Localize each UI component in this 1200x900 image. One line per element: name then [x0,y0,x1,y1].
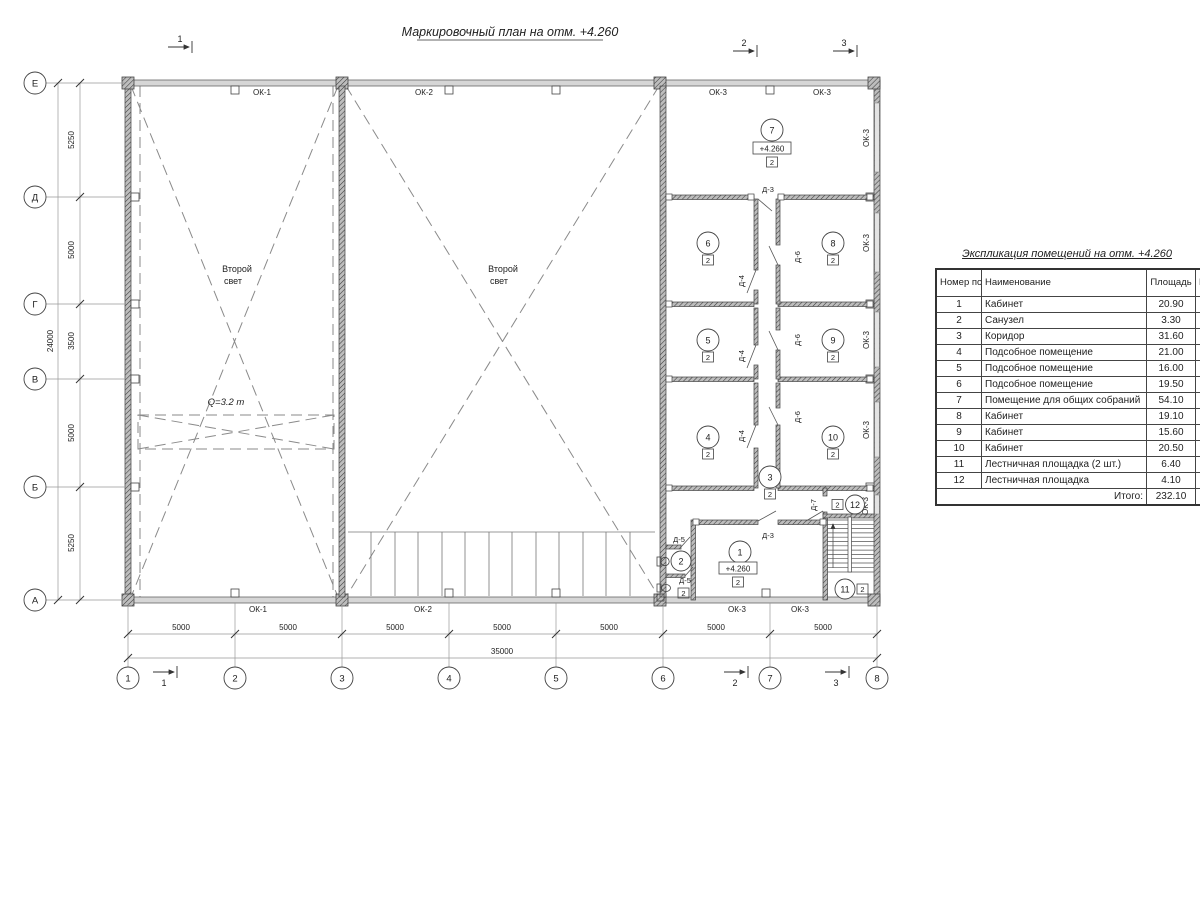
room-num: 1 [936,297,982,313]
room-num: 11 [936,457,982,473]
axis-bubble: 4 [446,674,451,685]
left-dimensions: 5250 5000 3500 5000 5250 24000 [46,131,76,552]
room-cat [1196,329,1200,345]
room-num: 5 [936,361,982,377]
door-label-d4: Д-4 [737,430,746,442]
room-name: Помещение для общих собраний [982,393,1147,409]
outer-walls [122,77,880,606]
table-row: 4Подсобное помещение21.00 [936,345,1200,361]
room-area: 54.10 [1147,393,1196,409]
axis-bubble: Б [32,483,38,494]
axes-bottom: 1 2 3 4 5 6 7 8 5000 5000 5000 5000 5000… [117,603,888,689]
section-mark-label: 3 [841,38,846,48]
room-number: 1 [737,548,742,558]
door-label-d3: Д-3 [762,185,774,194]
dim-total-label: 35000 [491,647,514,656]
dim-label: 5000 [172,623,190,632]
room-cat [1196,313,1200,329]
second-light-text: свет [224,276,242,286]
category-badge: 2 [770,158,774,167]
room-area: 16.00 [1147,361,1196,377]
room-cat [1196,409,1200,425]
dim-label: 5000 [279,623,297,632]
section-mark-label: 2 [732,678,737,688]
dim-label: 3500 [67,332,76,350]
room-cat [1196,441,1200,457]
room-num: 3 [936,329,982,345]
room-number: 3 [767,473,772,483]
dim-total-label: 24000 [46,329,55,352]
room-name: Коридор [982,329,1147,345]
col-header-number: Номер помещ. [936,269,982,297]
room-name: Лестничная площадка (2 шт.) [982,457,1147,473]
sheet-title: Маркировочный план на отм. +4.260 [402,25,619,40]
plan-title: Маркировочный план на отм. +4.260 [402,25,619,39]
section-mark-label: 2 [741,38,746,48]
dim-label: 5000 [493,623,511,632]
room-number: 10 [828,433,838,443]
axis-bubble: А [32,596,39,607]
table-row: 12Лестничная площадка4.10 [936,473,1200,489]
explication-title: Экспликация помещений на отм. +4.260 [935,248,1199,260]
room-num: 9 [936,425,982,441]
table-row: 10Кабинет20.50 [936,441,1200,457]
room-area: 6.40 [1147,457,1196,473]
dim-label: 5000 [600,623,618,632]
room-num: 10 [936,441,982,457]
door-label-d6: Д-6 [793,334,802,346]
door-label-d4: Д-4 [737,350,746,362]
axis-bubble: 8 [874,674,879,685]
table-row: 6Подсобное помещение19.50 [936,377,1200,393]
window-label-ok1: ОК-1 [249,605,268,614]
window-label-ok3: ОК-3 [862,330,871,349]
section-mark-label: 1 [161,678,166,688]
category-badge: 2 [706,353,710,362]
section-mark-label: 1 [177,34,182,44]
room-number: 5 [705,336,710,346]
total-area: 232.10 [1147,489,1196,506]
level-mark: +4.260 [726,565,751,574]
window-label-ok3: ОК-3 [709,88,728,97]
room-name: Подсобное помещение [982,345,1147,361]
table-row: 2Санузел3.30 [936,313,1200,329]
room-num: 6 [936,377,982,393]
room-num: 2 [936,313,982,329]
room-cat [1196,473,1200,489]
door-label-d5: Д-5 [679,576,691,585]
category-badge: 2 [835,501,839,510]
category-badge: 2 [831,256,835,265]
window-label-ok3: ОК-3 [862,420,871,439]
room-area: 3.30 [1147,313,1196,329]
room-area: 21.00 [1147,345,1196,361]
room-name: Санузел [982,313,1147,329]
room-name: Лестничная площадка [982,473,1147,489]
door-label-d3: Д-3 [762,531,774,540]
col-header-cat: Кат. пом. [1196,269,1200,297]
level-mark: +4.260 [760,145,785,154]
category-badge: 2 [736,578,740,587]
room-num: 4 [936,345,982,361]
table-row: 11Лестничная площадка (2 шт.)6.40 [936,457,1200,473]
door-label-d6: Д-6 [793,251,802,263]
total-label: Итого: [936,489,1147,506]
room-area: 20.50 [1147,441,1196,457]
room-name: Кабинет [982,441,1147,457]
category-badge: 2 [706,450,710,459]
room-number: 12 [850,500,860,510]
hall-annotations: Второй свет Второй свет Q=3.2 т [208,264,518,408]
axis-bubble: 5 [553,674,558,685]
axis-bubble: 6 [660,674,665,685]
axis-bubble: 3 [339,674,344,685]
platform [348,532,655,596]
col-header-name: Наименование [982,269,1147,297]
table-total-row: Итого: 232.10 [936,489,1200,506]
room-number: 4 [705,433,710,443]
category-badge: 2 [831,353,835,362]
room-name: Подсобное помещение [982,377,1147,393]
category-badge: 2 [768,490,772,499]
window-label-ok3: ОК-3 [813,88,832,97]
total-cat [1196,489,1200,506]
room-num: 12 [936,473,982,489]
second-light-text: Второй [488,264,518,274]
room-name: Кабинет [982,409,1147,425]
room-cat [1196,377,1200,393]
room-cat [1196,345,1200,361]
second-light-diagonals [131,86,659,597]
door-label-d5: Д-5 [673,535,685,544]
room-cat [1196,457,1200,473]
window-label-ok3: ОК-3 [728,605,747,614]
stairs [827,517,874,572]
door-label-d4: Д-4 [737,275,746,287]
window-label-ok3: ОК-3 [862,128,871,147]
room-area: 15.60 [1147,425,1196,441]
crane-capacity-label: Q=3.2 т [208,397,245,408]
room-number: 11 [840,585,849,595]
room-name: Подсобное помещение [982,361,1147,377]
dim-label: 5250 [67,534,76,552]
pilasters [122,77,880,606]
room-cat [1196,425,1200,441]
category-badge: 2 [860,585,864,594]
category-badge: 2 [681,589,685,598]
room-cat [1196,297,1200,313]
axis-bubble: В [32,375,38,386]
room-number: 7 [769,126,774,136]
second-light-text: Второй [222,264,252,274]
axis-bubble: Е [32,79,38,90]
room-name: Кабинет [982,297,1147,313]
table-row: 8Кабинет19.10 [936,409,1200,425]
dim-label: 5000 [707,623,725,632]
table-row: 9Кабинет15.60 [936,425,1200,441]
room-area: 20.90 [1147,297,1196,313]
table-row: 1Кабинет20.90 [936,297,1200,313]
category-badge: 2 [706,256,710,265]
table-row: 3Коридор31.60 [936,329,1200,345]
room-area: 19.50 [1147,377,1196,393]
axis-bubble: 2 [232,674,237,685]
axis-bubble: Г [32,300,37,311]
room-area: 31.60 [1147,329,1196,345]
room-number: 8 [830,239,835,249]
dim-label: 5000 [67,424,76,442]
dim-label: 5000 [67,241,76,259]
col-header-area: Площадь [1147,269,1196,297]
room-num: 8 [936,409,982,425]
room-number: 9 [830,336,835,346]
room-cat [1196,393,1200,409]
door-label-d6: Д-6 [793,411,802,423]
window-label-ok2: ОК-2 [414,605,433,614]
window-label-ok2: ОК-2 [415,88,434,97]
dim-ticks [124,630,881,662]
table-header-row: Номер помещ. Наименование Площадь Кат. п… [936,269,1200,297]
door-label-d7: Д-7 [809,499,818,511]
room-area: 19.10 [1147,409,1196,425]
axis-bubble: 1 [125,674,130,685]
category-badge: 2 [831,450,835,459]
section-marks: 1 2 3 1 2 3 [153,34,857,688]
axis-bubble: Д [32,193,39,204]
room-number: 2 [678,557,683,567]
drawing-sheet: { "title": "Маркировочный план на отм. +… [0,0,1200,900]
section-mark-label: 3 [833,678,838,688]
axis-bubble: 7 [767,674,772,685]
explication-table: Номер помещ. Наименование Площадь Кат. п… [935,268,1200,506]
axes-left: Е Д Г В Б А 5250 5000 3500 5000 5250 240… [24,72,125,611]
bottom-dimensions: 5000 5000 5000 5000 5000 5000 5000 35000 [172,623,832,656]
room-area: 4.10 [1147,473,1196,489]
room-num: 7 [936,393,982,409]
room-name: Кабинет [982,425,1147,441]
room-explication: Экспликация помещений на отм. +4.260 Ном… [935,248,1199,506]
table-row: 7Помещение для общих собраний54.10 [936,393,1200,409]
window-label-ok3: ОК-3 [862,233,871,252]
room-number: 6 [705,239,710,249]
second-light-text: свет [490,276,508,286]
window-label-ok3: ОК-3 [791,605,810,614]
window-label-ok1: ОК-1 [253,88,272,97]
dim-label: 5000 [814,623,832,632]
dim-label: 5000 [386,623,404,632]
dim-label: 5250 [67,131,76,149]
table-row: 5Подсобное помещение16.00 [936,361,1200,377]
room-cat [1196,361,1200,377]
